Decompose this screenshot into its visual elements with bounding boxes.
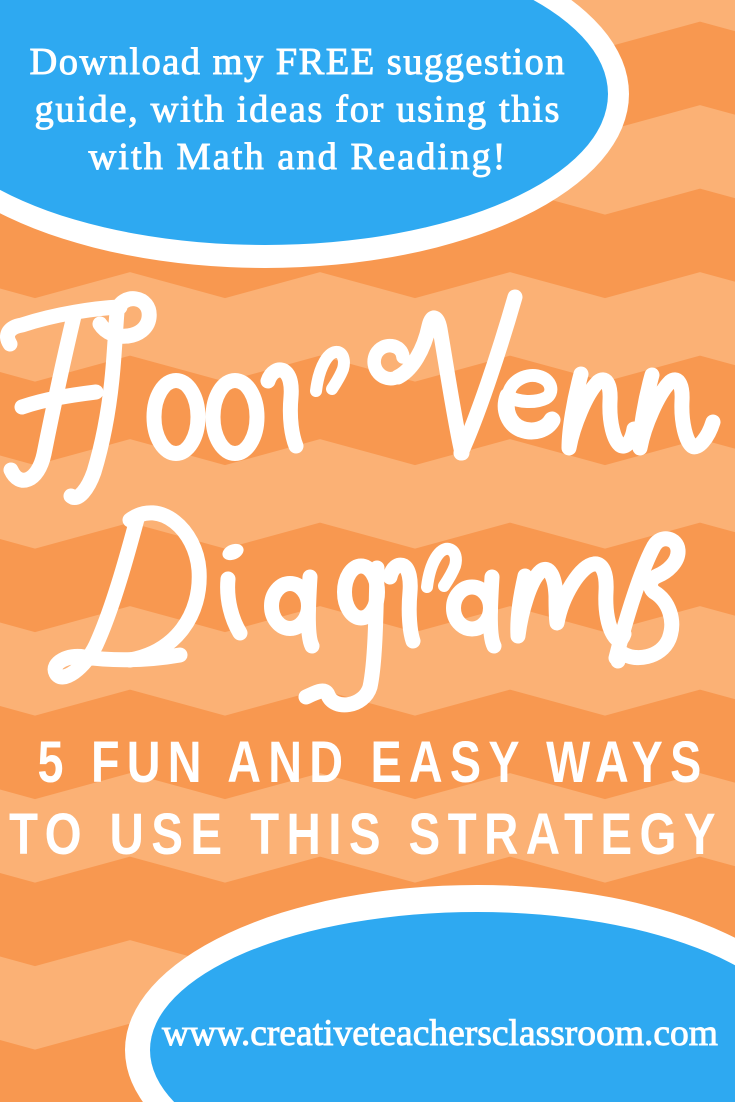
svg-text:5 FUN AND EASY WAYS: 5 FUN AND EASY WAYS — [38, 730, 709, 795]
svg-text:www.creativeteachersclassroom.: www.creativeteachersclassroom.com — [162, 1013, 718, 1054]
svg-text:TO USE THIS STRATEGY: TO USE THIS STRATEGY — [9, 802, 723, 867]
svg-text:Download my FREE suggestion: Download my FREE suggestion — [30, 41, 565, 83]
svg-text:with Math and Reading!: with Math and Reading! — [89, 136, 506, 178]
svg-text:guide, with ideas for using th: guide, with ideas for using this — [35, 89, 560, 131]
